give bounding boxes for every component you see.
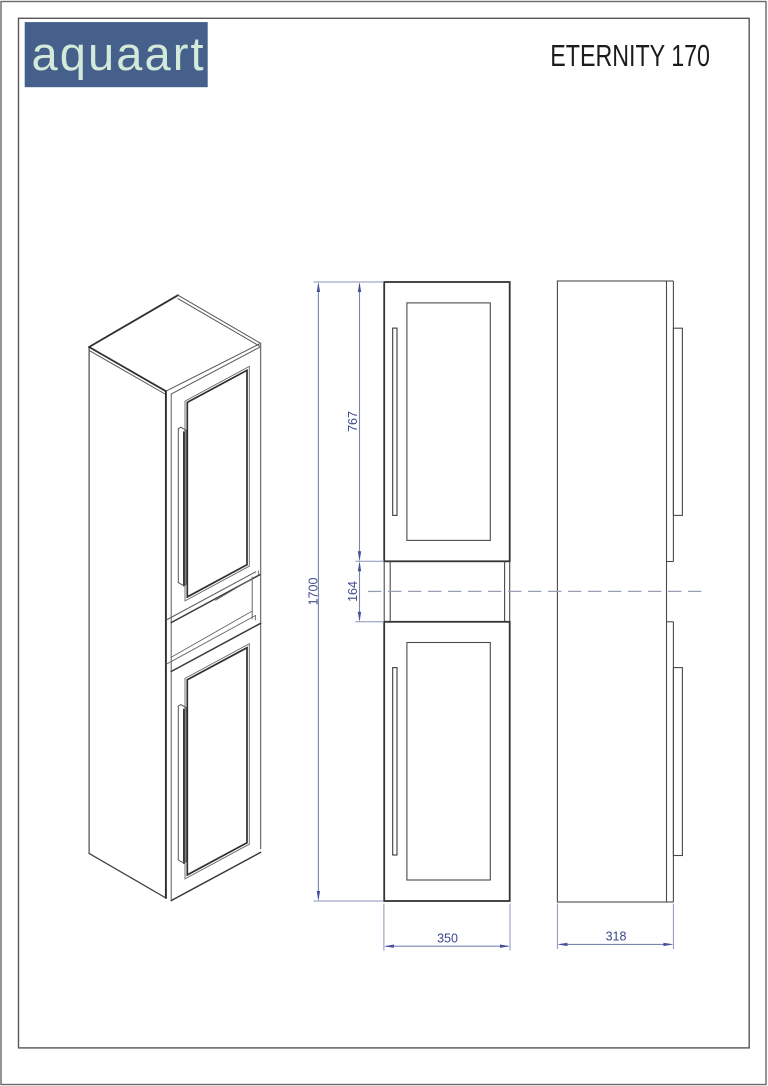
svg-text:350: 350	[437, 932, 458, 946]
svg-text:aquaart: aquaart	[32, 27, 206, 80]
svg-text:767: 767	[346, 411, 360, 432]
svg-text:1700: 1700	[306, 578, 320, 606]
svg-text:164: 164	[346, 581, 360, 602]
svg-text:ETERNITY 170: ETERNITY 170	[550, 38, 710, 73]
svg-text:318: 318	[606, 930, 627, 944]
